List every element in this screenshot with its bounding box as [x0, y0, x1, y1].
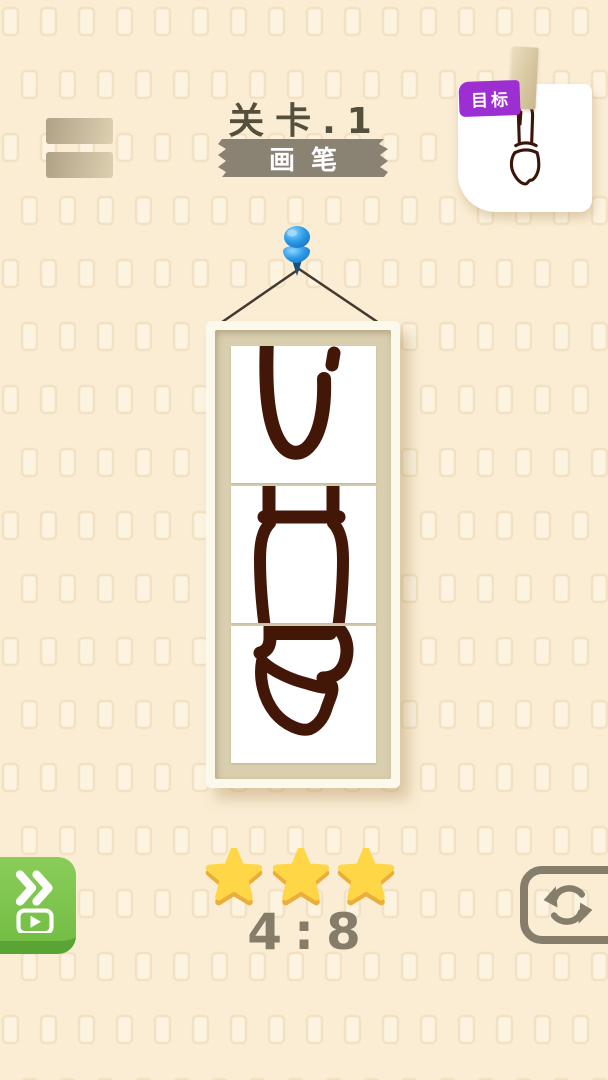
subject-ribbon: 画笔	[217, 139, 389, 177]
frame-mat	[215, 330, 391, 779]
level-title: 关卡.1	[140, 92, 460, 144]
puzzle-piece-2[interactable]	[231, 486, 376, 623]
star-rating	[0, 848, 608, 908]
pushpin-and-string	[200, 224, 400, 332]
piece-2-ferrule-drawing	[231, 486, 376, 623]
goal-brush-drawing	[506, 102, 545, 191]
puzzle-piece-1[interactable]	[231, 346, 376, 483]
star-icon	[272, 848, 330, 908]
piece-3-bristles-drawing	[231, 626, 376, 763]
menu-icon[interactable]	[46, 118, 113, 178]
menu-bar	[46, 152, 113, 178]
star-icon	[205, 848, 263, 908]
move-counter: 4:8	[154, 903, 454, 961]
hanging-string	[212, 269, 388, 329]
star-icon	[337, 848, 395, 908]
piece-1-brush-tip-drawing	[231, 346, 376, 483]
goal-badge: 目标	[458, 80, 520, 117]
game-screen: 关卡.1 画笔 目标	[0, 0, 608, 1080]
puzzle-frame	[206, 321, 400, 788]
reset-button[interactable]	[520, 866, 608, 944]
subject-label: 画笔	[217, 139, 389, 177]
menu-bar	[46, 118, 113, 144]
pushpin-icon	[283, 226, 310, 276]
puzzle-piece-3[interactable]	[231, 626, 376, 763]
refresh-icon	[542, 879, 594, 931]
